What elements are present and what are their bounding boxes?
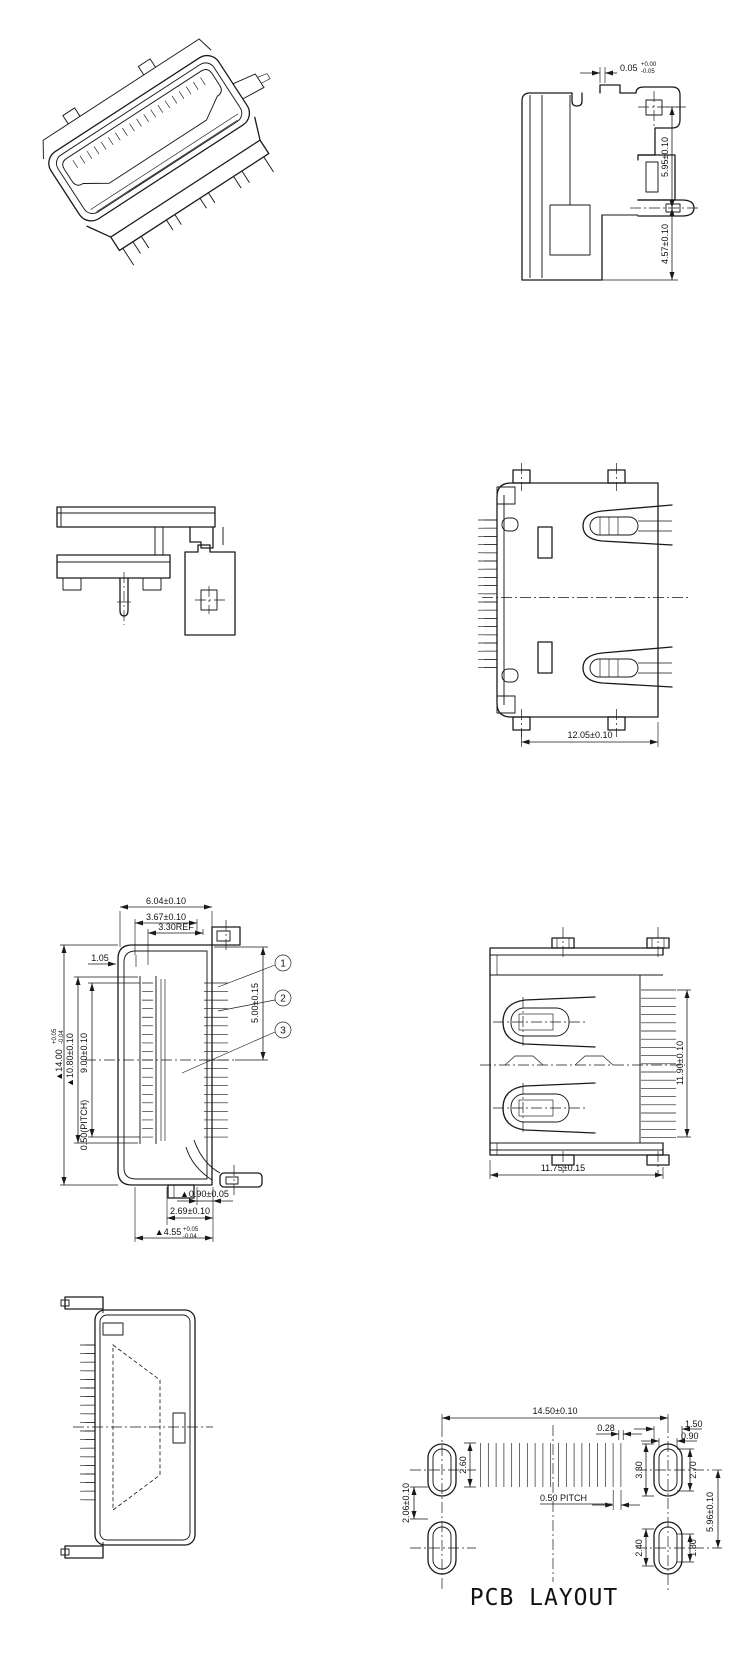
dim-depth-mid: 3.67±0.10 (146, 912, 186, 922)
dim-pad-width-label: 0.28 (597, 1423, 615, 1433)
hidden-opening (113, 1345, 160, 1510)
shield-top-bar (57, 507, 215, 527)
dim-inner-span: 9.00±0.10 (79, 1033, 89, 1073)
shield-window (538, 527, 552, 558)
front-section-view: 6.04±0.10 3.67±0.10 3.30REF 1 2 3 5.00±0… (30, 835, 325, 1250)
through-hole-pins (123, 157, 275, 265)
shield-back-plate (29, 28, 211, 159)
callout-1: 1 (280, 959, 286, 970)
dim-foot-tol-plus: +0.05 (183, 1227, 199, 1233)
dim-tail-offset-label: 2.69±0.10 (170, 1206, 210, 1216)
dim-foot-label: ▲4.55 (155, 1227, 181, 1237)
dim-offset-label: 1.05 (91, 953, 109, 963)
dim-height-right: 5.00±0.15 (250, 983, 260, 1023)
dim-upper-height-label: 5.95±0.10 (660, 137, 670, 177)
dim-left-hole-label: 2.06±0.10 (401, 1483, 411, 1523)
dim-lower-height-label: 4.57±0.10 (660, 224, 670, 264)
dim-gap-tol-minus: -0.05 (641, 69, 655, 75)
dim-hole-width-label: 1.50 (685, 1419, 703, 1429)
shield-window (538, 642, 552, 673)
pin-tail-stack (641, 990, 663, 1138)
rear-outline (490, 948, 663, 1155)
dim-span-label: 14.50±0.10 (533, 1406, 578, 1416)
dim-height-label: 11.90±0.10 (675, 1041, 685, 1085)
callout-3: 3 (280, 1026, 286, 1037)
isometric-connector-drawing (29, 10, 315, 275)
dim-bottom-slot-label: 1.80 (688, 1539, 698, 1557)
dim-shell-width-tol-plus: +0.05 (52, 1028, 58, 1044)
dim-width-label: 12.05±0.10 (568, 730, 613, 740)
front-view (45, 1285, 230, 1590)
side-mount-tab (233, 71, 264, 101)
dim-pad-height-label: 2.60 (458, 1456, 468, 1474)
upper-mount-tab (620, 87, 680, 160)
dim-width-label: 11.75±0.15 (541, 1163, 585, 1173)
dim-depth-total: 6.04±0.10 (146, 896, 186, 906)
pcb-layout-view: 14.50±0.10 0.28 2.60 0.50 PITCH 1.50 0.9… (380, 1330, 735, 1625)
dim-contact-span: ▲10.80±0.10 (65, 1033, 75, 1087)
connector-base (87, 117, 275, 258)
raised-tab (600, 85, 620, 93)
shell-front-outline (95, 1310, 195, 1545)
shell-slot (572, 93, 582, 106)
callout-2: 2 (280, 994, 286, 1005)
dim-slot-width-label: 0.90 (681, 1431, 699, 1441)
pcb-layout-title: PCB LAYOUT (470, 1585, 618, 1611)
dim-depth-ref: 3.30REF (158, 922, 194, 932)
dim-tail-label: ▲0.90±0.05 (180, 1189, 229, 1199)
top-bracket (65, 1297, 103, 1309)
pad-row (481, 1443, 621, 1487)
rear-view: 11.90±0.10 11.75±0.15 (435, 875, 735, 1187)
dim-bottom-hole-label: 2.40 (634, 1539, 644, 1557)
dim-hole-height-label: 3.30 (634, 1461, 644, 1479)
side-profile-view: 0.05 +0.00 -0.05 5.95±0.10 4.57±0.10 (450, 55, 710, 290)
dim-pitch-label: 0.50 PITCH (540, 1493, 587, 1503)
latch-spring (583, 505, 672, 545)
dim-gap-tol-plus: +0.00 (641, 62, 657, 68)
top-view: 12.05±0.10 (440, 425, 715, 755)
side-view-left (45, 490, 250, 665)
dim-foot-tol-minus: -0.04 (183, 1234, 197, 1240)
bottom-bracket (65, 1546, 103, 1558)
dim-gap-label: 0.05 (620, 63, 638, 73)
latch-spring (583, 647, 672, 687)
dim-pitch-label: 0.50(PITCH) (79, 1100, 89, 1151)
solder-legs (133, 171, 250, 254)
dim-vspan-label: 5.96±0.10 (705, 1492, 715, 1532)
technical-drawing-sheet: 0.05 +0.00 -0.05 5.95±0.10 4.57±0.10 12.… (0, 0, 750, 1676)
base-bracket (57, 555, 170, 578)
dim-shell-width: ▲14.00 (54, 1049, 64, 1080)
isometric-view (25, 35, 295, 315)
dim-slot-height-label: 2.70 (688, 1461, 698, 1479)
